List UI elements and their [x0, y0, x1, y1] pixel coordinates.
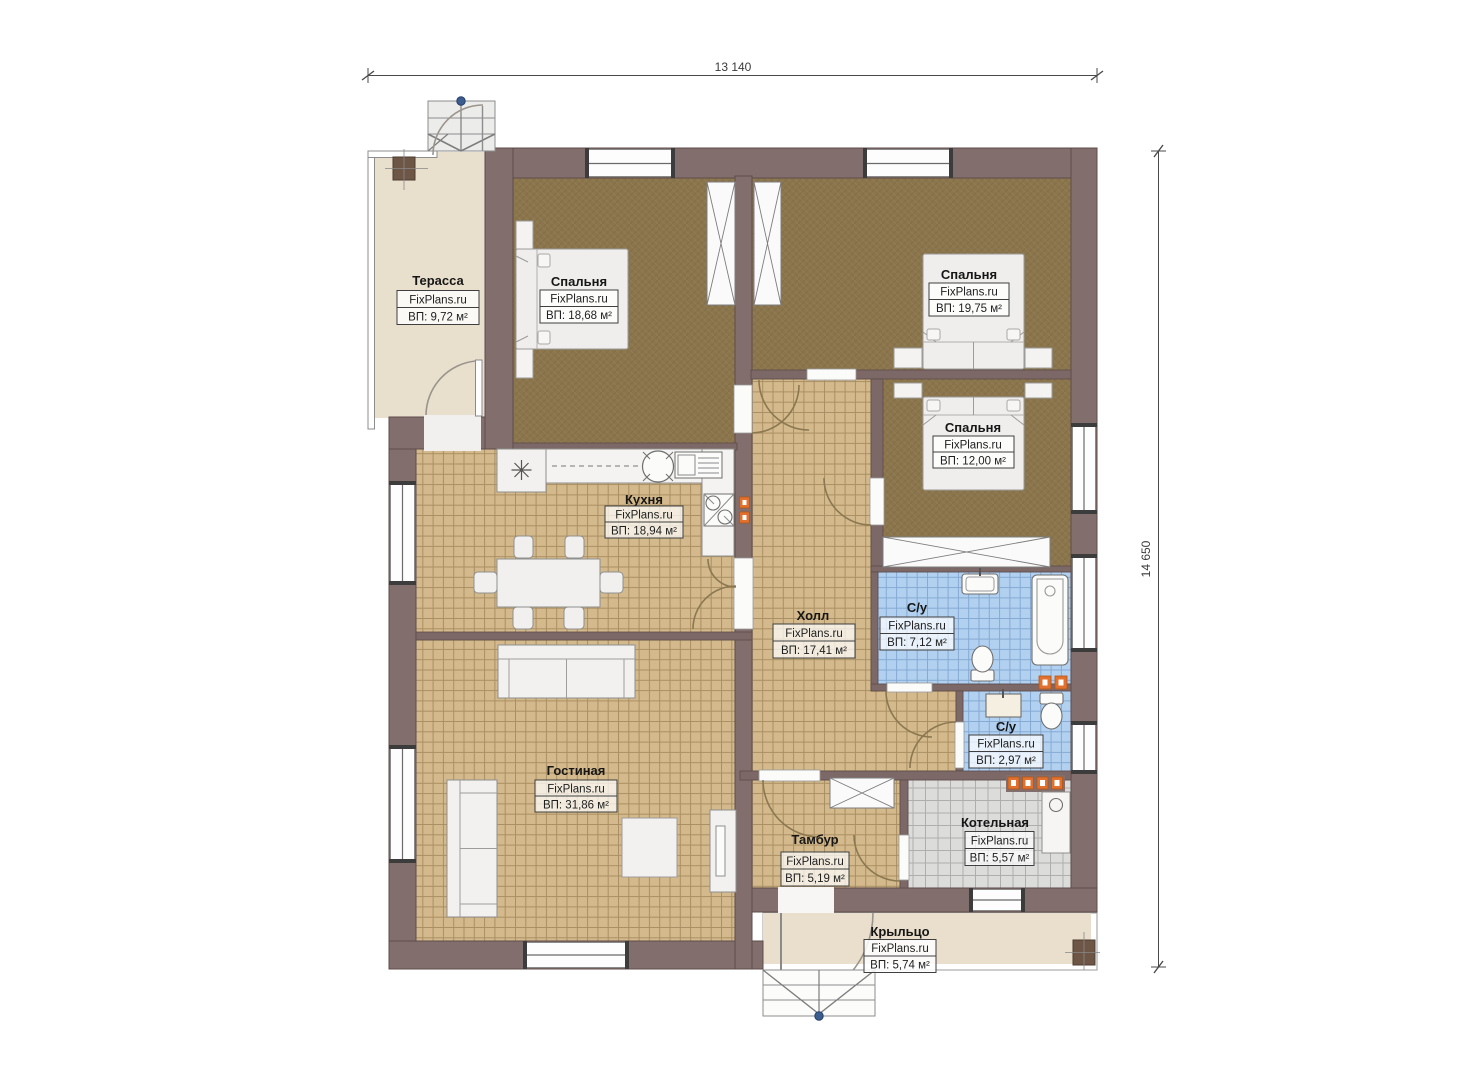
- svg-text:ВП: 5,57 м²: ВП: 5,57 м²: [970, 853, 1030, 865]
- svg-text:Спальня: Спальня: [551, 274, 607, 289]
- svg-text:ВП: 19,75 м²: ВП: 19,75 м²: [936, 303, 1002, 315]
- svg-text:FixPlans.ru: FixPlans.ru: [971, 836, 1029, 848]
- svg-text:ВП: 12,00 м²: ВП: 12,00 м²: [940, 456, 1006, 468]
- svg-text:Гостиная: Гостиная: [547, 763, 606, 778]
- svg-text:ВП: 17,41 м²: ВП: 17,41 м²: [781, 645, 847, 657]
- svg-text:ВП: 7,12 м²: ВП: 7,12 м²: [887, 637, 947, 649]
- svg-text:FixPlans.ru: FixPlans.ru: [940, 287, 998, 299]
- svg-text:FixPlans.ru: FixPlans.ru: [977, 739, 1035, 751]
- svg-text:Спальня: Спальня: [941, 267, 997, 282]
- svg-text:Тамбур: Тамбур: [791, 832, 838, 847]
- svg-text:13 140: 13 140: [715, 60, 752, 74]
- svg-text:Холл: Холл: [797, 608, 830, 623]
- svg-text:FixPlans.ru: FixPlans.ru: [409, 295, 467, 307]
- svg-text:ВП: 18,94 м²: ВП: 18,94 м²: [611, 526, 677, 538]
- svg-text:С/у: С/у: [996, 719, 1017, 734]
- svg-text:Котельная: Котельная: [961, 815, 1029, 830]
- svg-text:ВП: 5,74 м²: ВП: 5,74 м²: [870, 960, 930, 972]
- svg-text:FixPlans.ru: FixPlans.ru: [785, 628, 843, 640]
- svg-text:FixPlans.ru: FixPlans.ru: [944, 440, 1002, 452]
- svg-text:FixPlans.ru: FixPlans.ru: [547, 784, 605, 796]
- svg-text:С/у: С/у: [907, 600, 928, 615]
- svg-text:FixPlans.ru: FixPlans.ru: [615, 510, 673, 522]
- svg-text:Спальня: Спальня: [945, 420, 1001, 435]
- svg-text:14 650: 14 650: [1139, 540, 1153, 577]
- svg-text:Крыльцо: Крыльцо: [870, 924, 929, 939]
- svg-text:FixPlans.ru: FixPlans.ru: [888, 621, 946, 633]
- svg-text:Терасса: Терасса: [412, 273, 464, 288]
- svg-text:FixPlans.ru: FixPlans.ru: [871, 943, 929, 955]
- svg-text:FixPlans.ru: FixPlans.ru: [550, 294, 608, 306]
- svg-text:ВП: 2,97 м²: ВП: 2,97 м²: [976, 755, 1036, 767]
- svg-text:Кухня: Кухня: [625, 492, 663, 507]
- svg-text:ВП: 31,86 м²: ВП: 31,86 м²: [543, 800, 609, 812]
- svg-text:ВП: 5,19 м²: ВП: 5,19 м²: [785, 873, 845, 885]
- svg-text:FixPlans.ru: FixPlans.ru: [786, 856, 844, 868]
- svg-text:ВП: 18,68 м²: ВП: 18,68 м²: [546, 310, 612, 322]
- svg-text:ВП: 9,72 м²: ВП: 9,72 м²: [408, 312, 468, 324]
